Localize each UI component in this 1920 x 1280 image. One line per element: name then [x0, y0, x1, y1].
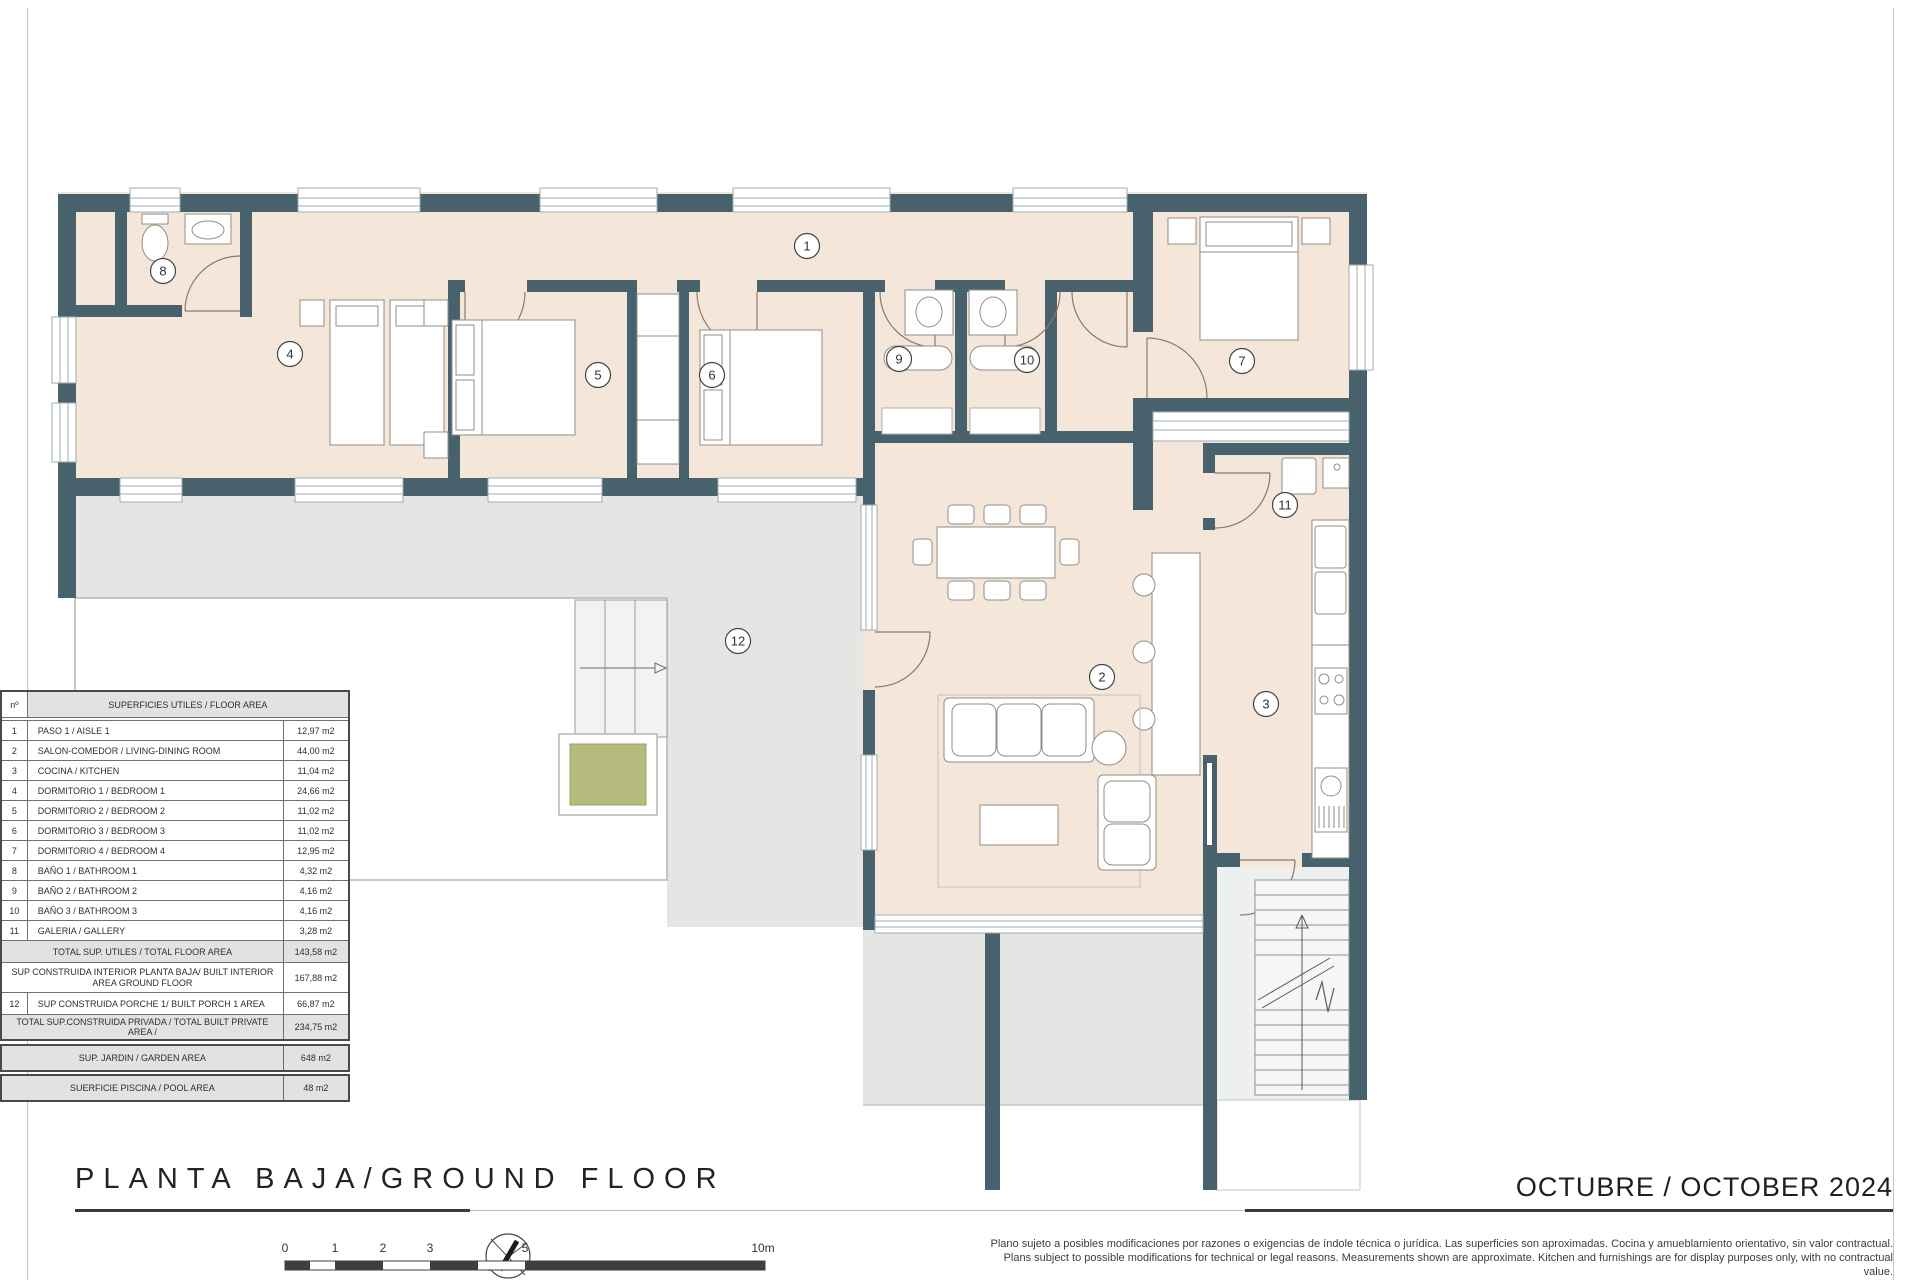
room-number-10: 10: [1015, 348, 1040, 373]
kitchen-island: [1152, 553, 1200, 775]
room-number-5: 5: [586, 363, 611, 388]
table-row: 2SALON-COMEDOR / LIVING-DINING ROOM44,00…: [2, 741, 348, 761]
kitchen-sink: [1315, 768, 1347, 832]
wall-recess: [1207, 763, 1212, 845]
sink-gallery: [1323, 458, 1349, 488]
svg-text:1: 1: [332, 1241, 339, 1255]
svg-text:7: 7: [1238, 354, 1245, 369]
washer: [1282, 458, 1316, 494]
room-number-2: 2: [1090, 665, 1115, 690]
disclaimer-line-es: Plano sujeto a posibles modificaciones p…: [973, 1237, 1893, 1251]
svg-text:3: 3: [1262, 697, 1269, 712]
dining-table: [937, 527, 1055, 578]
svg-text:1: 1: [803, 239, 810, 254]
scale-bar: 0 1 2 3 5 10m: [282, 1241, 775, 1270]
sheet: 1 2 3 4 5 6 7 8 9 10 11 12 0 1 2 3: [0, 0, 1920, 1280]
svg-text:6: 6: [708, 368, 715, 383]
stool: [1133, 574, 1155, 596]
side-table: [1092, 731, 1126, 765]
svg-text:2: 2: [1098, 670, 1105, 685]
title-rule: [75, 1209, 470, 1212]
svg-text:5: 5: [522, 1241, 529, 1255]
table-row: 7DORMITORIO 4 / BEDROOM 412,95 m2: [2, 841, 348, 861]
green-planter: [559, 734, 657, 815]
room-number-9: 9: [887, 347, 912, 372]
table-row: 9BAÑO 2 / BATHROOM 24,16 m2: [2, 881, 348, 901]
porch-row: 12 SUP CONSTRUIDA PORCHE 1/ BUILT PORCH …: [2, 993, 348, 1015]
staircase: [1255, 880, 1349, 1095]
svg-text:3: 3: [427, 1241, 434, 1255]
disclaimer: Plano sujeto a posibles modificaciones p…: [973, 1237, 1893, 1279]
svg-text:4: 4: [286, 347, 293, 362]
room-number-7: 7: [1230, 349, 1255, 374]
room-number-4: 4: [278, 342, 303, 367]
coffee-table: [980, 805, 1058, 845]
room-number-1: 1: [795, 234, 820, 259]
svg-text:10m: 10m: [751, 1241, 774, 1255]
room-number-8: 8: [151, 259, 176, 284]
closet: [637, 294, 679, 464]
table-row: 3COCINA / KITCHEN11,04 m2: [2, 761, 348, 781]
area-table-header: nº SUPERFICIES UTILES / FLOOR AREA: [2, 692, 348, 718]
vanity-bathroom3: [969, 290, 1017, 335]
area-table: nº SUPERFICIES UTILES / FLOOR AREA 1PASO…: [0, 690, 350, 1041]
table-row: 10BAÑO 3 / BATHROOM 34,16 m2: [2, 901, 348, 921]
header-title: SUPERFICIES UTILES / FLOOR AREA: [28, 692, 348, 717]
svg-text:8: 8: [159, 264, 166, 279]
room-number-3: 3: [1254, 692, 1279, 717]
svg-text:0: 0: [282, 1241, 289, 1255]
stool: [1133, 641, 1155, 663]
armchair: [1098, 775, 1156, 870]
sofa: [944, 698, 1094, 762]
nightstand: [1302, 218, 1330, 244]
exterior-steps: [575, 600, 667, 737]
bed-bedroom3: [700, 330, 822, 445]
svg-text:5: 5: [594, 368, 601, 383]
table-row: 5DORMITORIO 2 / BEDROOM 211,02 m2: [2, 801, 348, 821]
header-num: nº: [2, 692, 28, 717]
svg-text:10: 10: [1020, 353, 1034, 368]
table-row: 8BAÑO 1 / BATHROOM 14,32 m2: [2, 861, 348, 881]
vanity-bathroom2: [905, 290, 953, 335]
total-floor-row: TOTAL SUP. UTILES / TOTAL FLOOR AREA 143…: [2, 941, 348, 963]
toilet: [142, 214, 168, 261]
bed-bedroom4: [1200, 217, 1298, 340]
nightstand: [424, 300, 448, 326]
table-row: 11GALERIA / GALLERY3,28 m2: [2, 921, 348, 941]
bed-bedroom2: [452, 320, 575, 435]
page-title: PLANTA BAJA/GROUND FLOOR: [75, 1163, 726, 1196]
bed-single-a: [330, 300, 384, 445]
nightstand: [300, 300, 324, 326]
nightstand: [1168, 218, 1196, 244]
svg-text:9: 9: [895, 352, 902, 367]
date-label: OCTUBRE / OCTOBER 2024: [1516, 1172, 1893, 1203]
table-row: 4DORMITORIO 1 / BEDROOM 124,66 m2: [2, 781, 348, 801]
svg-text:12: 12: [731, 634, 745, 649]
date-rule: [1245, 1209, 1893, 1212]
room-number-12: 12: [726, 629, 751, 654]
room-number-11: 11: [1273, 493, 1298, 518]
svg-text:2: 2: [380, 1241, 387, 1255]
disclaimer-line-en: Plans subject to possible modifications …: [973, 1251, 1893, 1279]
svg-text:11: 11: [1278, 498, 1292, 513]
pool-area-box: SUERFICIE PISCINA / POOL AREA 48 m2: [0, 1074, 350, 1102]
nightstand: [424, 432, 448, 458]
stool: [1133, 708, 1155, 730]
stove: [1315, 668, 1347, 714]
total-private-row: TOTAL SUP.CONSTRUIDA PRIVADA / TOTAL BUI…: [2, 1015, 348, 1039]
room-number-6: 6: [700, 363, 725, 388]
table-row: 6DORMITORIO 3 / BEDROOM 311,02 m2: [2, 821, 348, 841]
mid-rule: [470, 1210, 1245, 1211]
sink-bathroom1: [185, 214, 231, 244]
table-row: 1PASO 1 / AISLE 112,97 m2: [2, 721, 348, 741]
built-interior-row: SUP CONSTRUIDA INTERIOR PLANTA BAJA/ BUI…: [2, 963, 348, 993]
garden-area-box: SUP. JARDIN / GARDEN AREA 648 m2: [0, 1044, 350, 1072]
